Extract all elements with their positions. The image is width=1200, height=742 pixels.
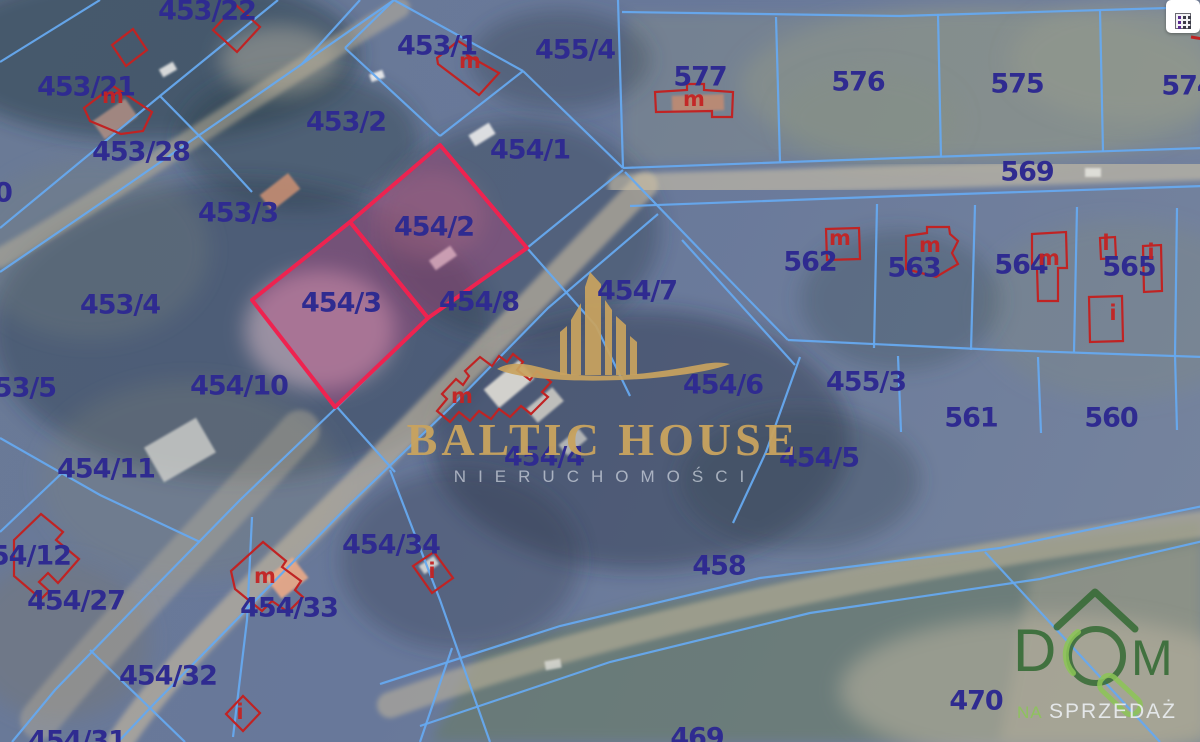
building-outline — [14, 514, 79, 599]
parcel-boundary-line — [1175, 208, 1177, 355]
parcel-boundary-line — [0, 0, 100, 62]
parcel-boundary-line — [420, 648, 452, 742]
parcel-boundary-line — [625, 172, 788, 340]
parcel-boundary-line — [1074, 207, 1077, 352]
parcel-boundary-line — [622, 7, 1200, 16]
building-outline — [655, 84, 733, 117]
parcel-boundary-line — [733, 357, 800, 523]
parcel-boundary-line — [898, 356, 901, 432]
skyline-tower — [630, 336, 637, 375]
building-outline — [826, 228, 860, 260]
parcel-boundary-line — [345, 48, 440, 136]
parcel-boundary-line — [938, 14, 941, 157]
building-outline — [413, 552, 453, 593]
parcel-boundary-line — [1038, 357, 1041, 433]
skyline-tower — [585, 272, 601, 375]
parcel-boundary-line — [380, 506, 1200, 684]
parcel-boundary-line — [630, 186, 1200, 206]
parcel-boundary-line — [90, 650, 185, 742]
parcel-boundary-line — [874, 204, 877, 348]
parcel-boundary-line — [618, 0, 623, 168]
building-outline — [1100, 237, 1116, 259]
parcel-boundary-line — [160, 96, 252, 192]
parcel-boundary-line — [971, 205, 975, 350]
parcel-boundary-line — [0, 438, 200, 542]
parcel-boundary-line — [337, 407, 395, 472]
building-outline — [112, 29, 147, 66]
parcel-boundary-line — [776, 17, 780, 162]
building-outline — [437, 41, 499, 95]
cadastral-overlay-layer — [0, 0, 1200, 742]
building-outline — [437, 354, 551, 422]
skyline-tower — [571, 303, 581, 375]
parcel-boundary-line — [788, 340, 1200, 357]
parcel-boundary-line — [0, 0, 278, 228]
legend-button[interactable] — [1166, 0, 1200, 33]
skyline-tower — [616, 316, 626, 375]
building-outline — [1032, 232, 1067, 301]
parcel-boundary-line — [440, 71, 523, 136]
skyline-tower — [605, 300, 612, 375]
building-outline — [213, 5, 260, 52]
skyline-tower — [560, 326, 567, 375]
building-outline — [1089, 296, 1123, 342]
parcel-boundary-line — [390, 470, 490, 742]
building-outline — [1143, 245, 1162, 292]
parcel-boundary-line — [394, 0, 523, 71]
parcel-boundary-line — [0, 0, 394, 272]
building-outline — [226, 696, 260, 731]
map-canvas[interactable]: 453/22453/21453/28453/2453/1455/45775765… — [0, 0, 1200, 742]
parcel-boundary-line — [523, 71, 623, 168]
parcel-boundary-line — [623, 148, 1200, 168]
legend-grid-icon — [1175, 13, 1191, 29]
parcel-boundary-line — [1175, 355, 1177, 430]
building-outline — [231, 542, 303, 612]
parcel-boundary-line — [985, 552, 1160, 742]
parcel-boundary-line — [682, 240, 795, 365]
building-outline-fragment — [1191, 37, 1200, 39]
building-outline — [906, 227, 958, 277]
parcel-boundary-line — [1100, 10, 1103, 152]
